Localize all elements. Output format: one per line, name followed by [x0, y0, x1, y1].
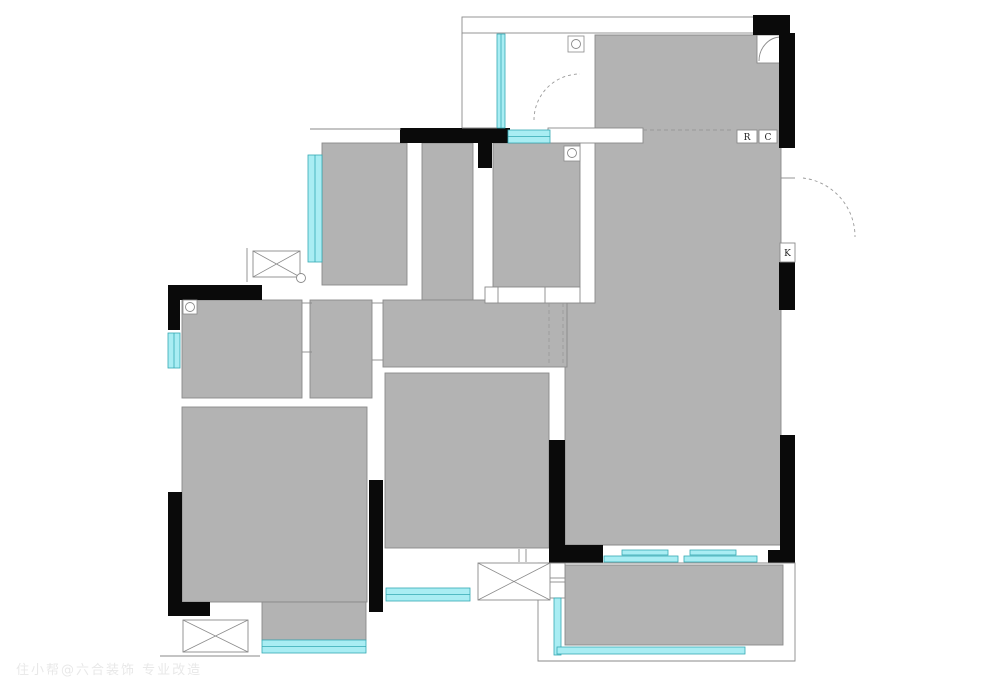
wall-top-right-block: [753, 15, 790, 35]
bedroom-left-extension: [262, 602, 366, 640]
sliding-door-panel-2: [690, 550, 736, 555]
window-balcony-bottom: [557, 647, 745, 654]
floor-plan: RCK 住小帮@六合装饰 专业改造: [0, 0, 1000, 699]
wall-living-bottom-left: [549, 545, 603, 563]
balcony: [565, 565, 783, 645]
window-balcony-left: [554, 598, 561, 655]
balcony-top-strip: [462, 17, 755, 33]
sliding-door-panel-4: [684, 556, 757, 562]
label-cabinet: C: [765, 133, 772, 143]
door-hinge-entry: [572, 40, 581, 49]
bathroom: [182, 300, 302, 398]
bedroom-left: [182, 407, 367, 602]
alcove: [310, 300, 372, 398]
hall-vertical: [422, 143, 473, 300]
label-door: K: [784, 249, 791, 259]
wall-right-upper: [779, 33, 795, 148]
bedroom-middle: [385, 373, 549, 548]
living-top-divider: [548, 128, 643, 143]
sliding-door-panel-3: [604, 556, 678, 562]
room-top-left: [322, 143, 407, 285]
wall-left-lower: [168, 492, 182, 616]
closet: [485, 287, 580, 303]
living-dining-room: [565, 35, 781, 545]
wall-bedroom-middle-right: [549, 440, 565, 545]
hall-horizontal: [383, 300, 567, 367]
entry-door-arc: [534, 74, 580, 120]
sliding-door-panel-1: [622, 550, 668, 555]
room-top-middle: [493, 143, 580, 287]
wall-top-middle-stub: [478, 143, 492, 168]
watermark: 住小帮@六合装饰 专业改造: [16, 659, 202, 678]
wall-left-upper-stub: [168, 285, 180, 330]
door-hinge-fixture: [297, 274, 306, 283]
wall-bedroom-left-right: [369, 480, 383, 612]
label-refrigerator: R: [744, 133, 751, 143]
door-hinge-bathroom: [186, 303, 195, 312]
wall-bathroom-top: [168, 285, 262, 300]
wall-top-middle: [400, 128, 510, 143]
wall-bottom-left: [168, 602, 210, 616]
wall-living-bottom-right: [768, 550, 795, 563]
floor-plan-drawing: RCK: [0, 0, 1000, 699]
side-door-arc: [803, 178, 855, 237]
wall-right-mid: [779, 262, 795, 310]
wall-right-lower: [780, 435, 795, 563]
door-hinge-room-top-middle: [568, 149, 577, 158]
